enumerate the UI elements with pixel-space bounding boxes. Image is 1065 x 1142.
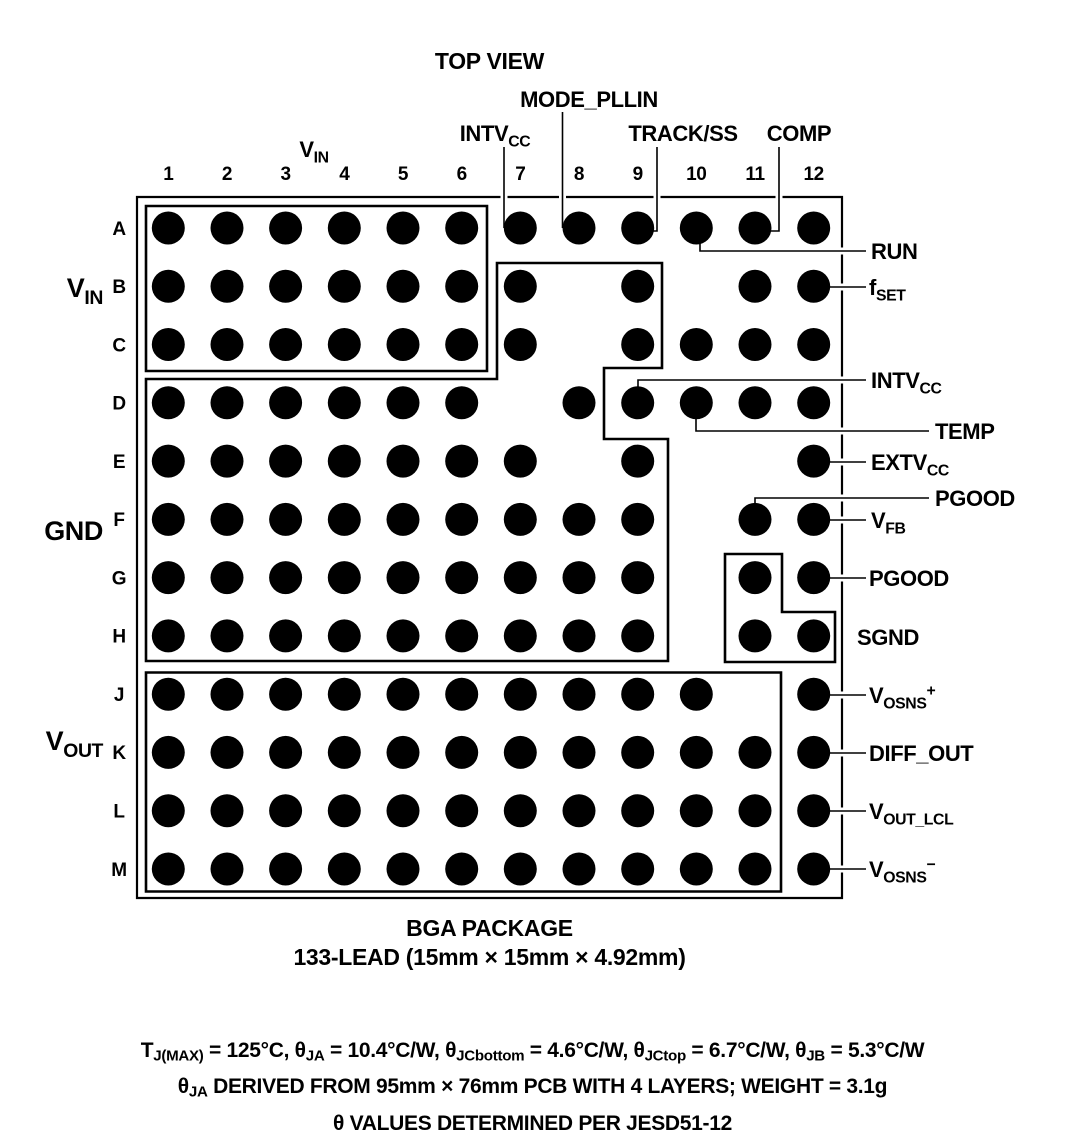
ball-L5 xyxy=(387,794,420,827)
ball-B4 xyxy=(328,270,361,303)
ball-J9 xyxy=(621,678,654,711)
ball-H4 xyxy=(328,619,361,652)
ball-L8 xyxy=(563,794,596,827)
pin-label-fset: fSET xyxy=(869,275,906,305)
row-label-F: F xyxy=(113,510,124,531)
ball-E4 xyxy=(328,445,361,478)
ball-K3 xyxy=(269,736,302,769)
ball-M12 xyxy=(797,853,830,886)
ball-F7 xyxy=(504,503,537,536)
ball-M6 xyxy=(445,853,478,886)
ball-L4 xyxy=(328,794,361,827)
row-label-H: H xyxy=(112,627,125,648)
ball-A8 xyxy=(563,212,596,245)
ball-C10 xyxy=(680,328,713,361)
ball-F1 xyxy=(152,503,185,536)
ball-H8 xyxy=(563,619,596,652)
ball-H11 xyxy=(739,619,772,652)
ball-G7 xyxy=(504,561,537,594)
ball-K6 xyxy=(445,736,478,769)
row-label-M: M xyxy=(111,860,126,881)
ball-M10 xyxy=(680,853,713,886)
col-label-2: 2 xyxy=(222,164,232,185)
ball-A2 xyxy=(211,212,244,245)
pin-label-temp: TEMP xyxy=(935,419,995,444)
ball-K4 xyxy=(328,736,361,769)
pin-label-pgood-lower: PGOOD xyxy=(869,566,949,591)
pin-label-intvcc-top: INTVCC xyxy=(460,121,531,151)
ball-A11 xyxy=(739,212,772,245)
ball-G6 xyxy=(445,561,478,594)
ball-D1 xyxy=(152,386,185,419)
ball-A5 xyxy=(387,212,420,245)
row-label-B: B xyxy=(112,277,125,298)
ball-M2 xyxy=(211,853,244,886)
package-name-caption: BGA PACKAGE xyxy=(137,914,842,943)
ball-B5 xyxy=(387,270,420,303)
pin-label-vosns-minus: VOSNS− xyxy=(869,857,935,887)
ball-G5 xyxy=(387,561,420,594)
ball-A6 xyxy=(445,212,478,245)
ball-G3 xyxy=(269,561,302,594)
thermal-note-3: θ VALUES DETERMINED PER JESD51-12 xyxy=(0,1108,1065,1139)
ball-G11 xyxy=(739,561,772,594)
col-label-12: 12 xyxy=(804,164,824,185)
ball-D12 xyxy=(797,386,830,419)
ball-C12 xyxy=(797,328,830,361)
ball-C7 xyxy=(504,328,537,361)
group-label-vin: VIN xyxy=(67,273,103,309)
ball-J12 xyxy=(797,678,830,711)
ball-E6 xyxy=(445,445,478,478)
ball-H1 xyxy=(152,619,185,652)
ball-B7 xyxy=(504,270,537,303)
ball-C1 xyxy=(152,328,185,361)
ball-J10 xyxy=(680,678,713,711)
ball-L9 xyxy=(621,794,654,827)
col-label-7: 7 xyxy=(515,164,525,185)
ball-K12 xyxy=(797,736,830,769)
col-label-9: 9 xyxy=(633,164,643,185)
row-label-E: E xyxy=(113,452,125,473)
ball-H2 xyxy=(211,619,244,652)
group-label-vin-col: VIN xyxy=(299,137,328,167)
group-label-vout: VOUT xyxy=(46,726,104,762)
row-label-L: L xyxy=(113,802,125,823)
pin-label-vosns-plus: VOSNS+ xyxy=(869,683,935,713)
ball-D8 xyxy=(563,386,596,419)
ball-K10 xyxy=(680,736,713,769)
pin-label-run: RUN xyxy=(871,239,917,264)
ball-G8 xyxy=(563,561,596,594)
ball-grid xyxy=(152,212,830,886)
group-label-gnd: GND xyxy=(44,516,103,546)
ball-G12 xyxy=(797,561,830,594)
ball-D3 xyxy=(269,386,302,419)
ball-H9 xyxy=(621,619,654,652)
pin-label-sgnd: SGND xyxy=(857,625,919,650)
pin-label-pgood-upper: PGOOD xyxy=(935,486,1015,511)
ball-E12 xyxy=(797,445,830,478)
ball-J1 xyxy=(152,678,185,711)
ball-C5 xyxy=(387,328,420,361)
ball-A4 xyxy=(328,212,361,245)
col-label-3: 3 xyxy=(281,164,291,185)
ball-C2 xyxy=(211,328,244,361)
ball-L6 xyxy=(445,794,478,827)
ball-C6 xyxy=(445,328,478,361)
ball-D4 xyxy=(328,386,361,419)
ball-H3 xyxy=(269,619,302,652)
ball-B9 xyxy=(621,270,654,303)
ball-M7 xyxy=(504,853,537,886)
ball-G4 xyxy=(328,561,361,594)
pin-label-comp: COMP xyxy=(767,121,831,146)
ball-K9 xyxy=(621,736,654,769)
pin-label-extvcc: EXTVCC xyxy=(871,450,949,480)
ball-B3 xyxy=(269,270,302,303)
ball-B12 xyxy=(797,270,830,303)
ball-F6 xyxy=(445,503,478,536)
col-label-4: 4 xyxy=(339,164,350,185)
ball-A12 xyxy=(797,212,830,245)
row-label-G: G xyxy=(112,568,126,589)
ball-B6 xyxy=(445,270,478,303)
ball-F3 xyxy=(269,503,302,536)
col-label-6: 6 xyxy=(457,164,467,185)
pin-label-intvcc-right: INTVCC xyxy=(871,368,942,398)
pin-label-diff-out: DIFF_OUT xyxy=(869,741,974,766)
row-label-D: D xyxy=(112,394,125,415)
ball-J2 xyxy=(211,678,244,711)
thermal-notes: TJ(MAX) = 125°C, θJA = 10.4°C/W, θJCbott… xyxy=(0,1035,1065,1139)
ball-C9 xyxy=(621,328,654,361)
ball-J5 xyxy=(387,678,420,711)
row-label-K: K xyxy=(112,743,126,764)
pin-label-vfb: VFB xyxy=(871,508,906,538)
ball-M8 xyxy=(563,853,596,886)
top-view-label: TOP VIEW xyxy=(137,50,842,73)
pin-label-track-ss: TRACK/SS xyxy=(628,121,737,146)
ball-B11 xyxy=(739,270,772,303)
ball-G1 xyxy=(152,561,185,594)
ball-J7 xyxy=(504,678,537,711)
ball-J8 xyxy=(563,678,596,711)
ball-D6 xyxy=(445,386,478,419)
ball-M4 xyxy=(328,853,361,886)
ball-L12 xyxy=(797,794,830,827)
ball-F11 xyxy=(739,503,772,536)
row-label-C: C xyxy=(112,335,126,356)
ball-C11 xyxy=(739,328,772,361)
pin-label-mode-pllin: MODE_PLLIN xyxy=(520,87,658,112)
ball-K7 xyxy=(504,736,537,769)
ball-G9 xyxy=(621,561,654,594)
ball-K1 xyxy=(152,736,185,769)
ball-E3 xyxy=(269,445,302,478)
ball-M5 xyxy=(387,853,420,886)
col-label-1: 1 xyxy=(163,164,174,185)
ball-B2 xyxy=(211,270,244,303)
ball-J3 xyxy=(269,678,302,711)
col-label-11: 11 xyxy=(745,164,765,185)
ball-D10 xyxy=(680,386,713,419)
ball-H7 xyxy=(504,619,537,652)
ball-E1 xyxy=(152,445,185,478)
ball-H5 xyxy=(387,619,420,652)
ball-A10 xyxy=(680,212,713,245)
ball-L10 xyxy=(680,794,713,827)
ball-A1 xyxy=(152,212,185,245)
package-outline xyxy=(137,197,842,898)
ball-J4 xyxy=(328,678,361,711)
ball-F5 xyxy=(387,503,420,536)
ball-B1 xyxy=(152,270,185,303)
ball-F8 xyxy=(563,503,596,536)
ball-L2 xyxy=(211,794,244,827)
region-outlines xyxy=(137,197,842,898)
vin-region-outline xyxy=(146,206,487,371)
ball-M11 xyxy=(739,853,772,886)
row-label-J: J xyxy=(114,685,124,706)
thermal-note-2: θJA DERIVED FROM 95mm × 76mm PCB WITH 4 … xyxy=(0,1071,1065,1107)
pin-label-vout-lcl: VOUT_LCL xyxy=(869,799,954,829)
ball-A9 xyxy=(621,212,654,245)
col-label-5: 5 xyxy=(398,164,409,185)
col-label-8: 8 xyxy=(574,164,584,185)
ball-F12 xyxy=(797,503,830,536)
ball-H6 xyxy=(445,619,478,652)
ball-D11 xyxy=(739,386,772,419)
ball-E2 xyxy=(211,445,244,478)
row-label-A: A xyxy=(112,219,126,240)
ball-L3 xyxy=(269,794,302,827)
ball-K5 xyxy=(387,736,420,769)
ball-D9 xyxy=(621,386,654,419)
ball-E5 xyxy=(387,445,420,478)
bga-pinout-diagram: 123456789101112ABCDEFGHJKLMINTVCCMODE_PL… xyxy=(0,0,1065,1142)
col-label-10: 10 xyxy=(686,164,706,185)
ball-E9 xyxy=(621,445,654,478)
ball-M1 xyxy=(152,853,185,886)
ball-G2 xyxy=(211,561,244,594)
ball-K8 xyxy=(563,736,596,769)
ball-F2 xyxy=(211,503,244,536)
leader-comp xyxy=(769,147,779,231)
thermal-note-1: TJ(MAX) = 125°C, θJA = 10.4°C/W, θJCbott… xyxy=(0,1035,1065,1071)
ball-M9 xyxy=(621,853,654,886)
ball-L1 xyxy=(152,794,185,827)
ball-L11 xyxy=(739,794,772,827)
ball-D2 xyxy=(211,386,244,419)
ball-C4 xyxy=(328,328,361,361)
ball-M3 xyxy=(269,853,302,886)
package-lead-caption: 133-LEAD (15mm × 15mm × 4.92mm) xyxy=(137,943,842,972)
ball-F4 xyxy=(328,503,361,536)
outline-gaps xyxy=(501,193,847,873)
ball-K2 xyxy=(211,736,244,769)
ball-J6 xyxy=(445,678,478,711)
ball-A3 xyxy=(269,212,302,245)
ball-A7 xyxy=(504,212,537,245)
ball-D5 xyxy=(387,386,420,419)
ball-F9 xyxy=(621,503,654,536)
ball-L7 xyxy=(504,794,537,827)
ball-K11 xyxy=(739,736,772,769)
ball-E7 xyxy=(504,445,537,478)
package-caption: BGA PACKAGE 133-LEAD (15mm × 15mm × 4.92… xyxy=(137,914,842,972)
ball-H12 xyxy=(797,619,830,652)
ball-C3 xyxy=(269,328,302,361)
